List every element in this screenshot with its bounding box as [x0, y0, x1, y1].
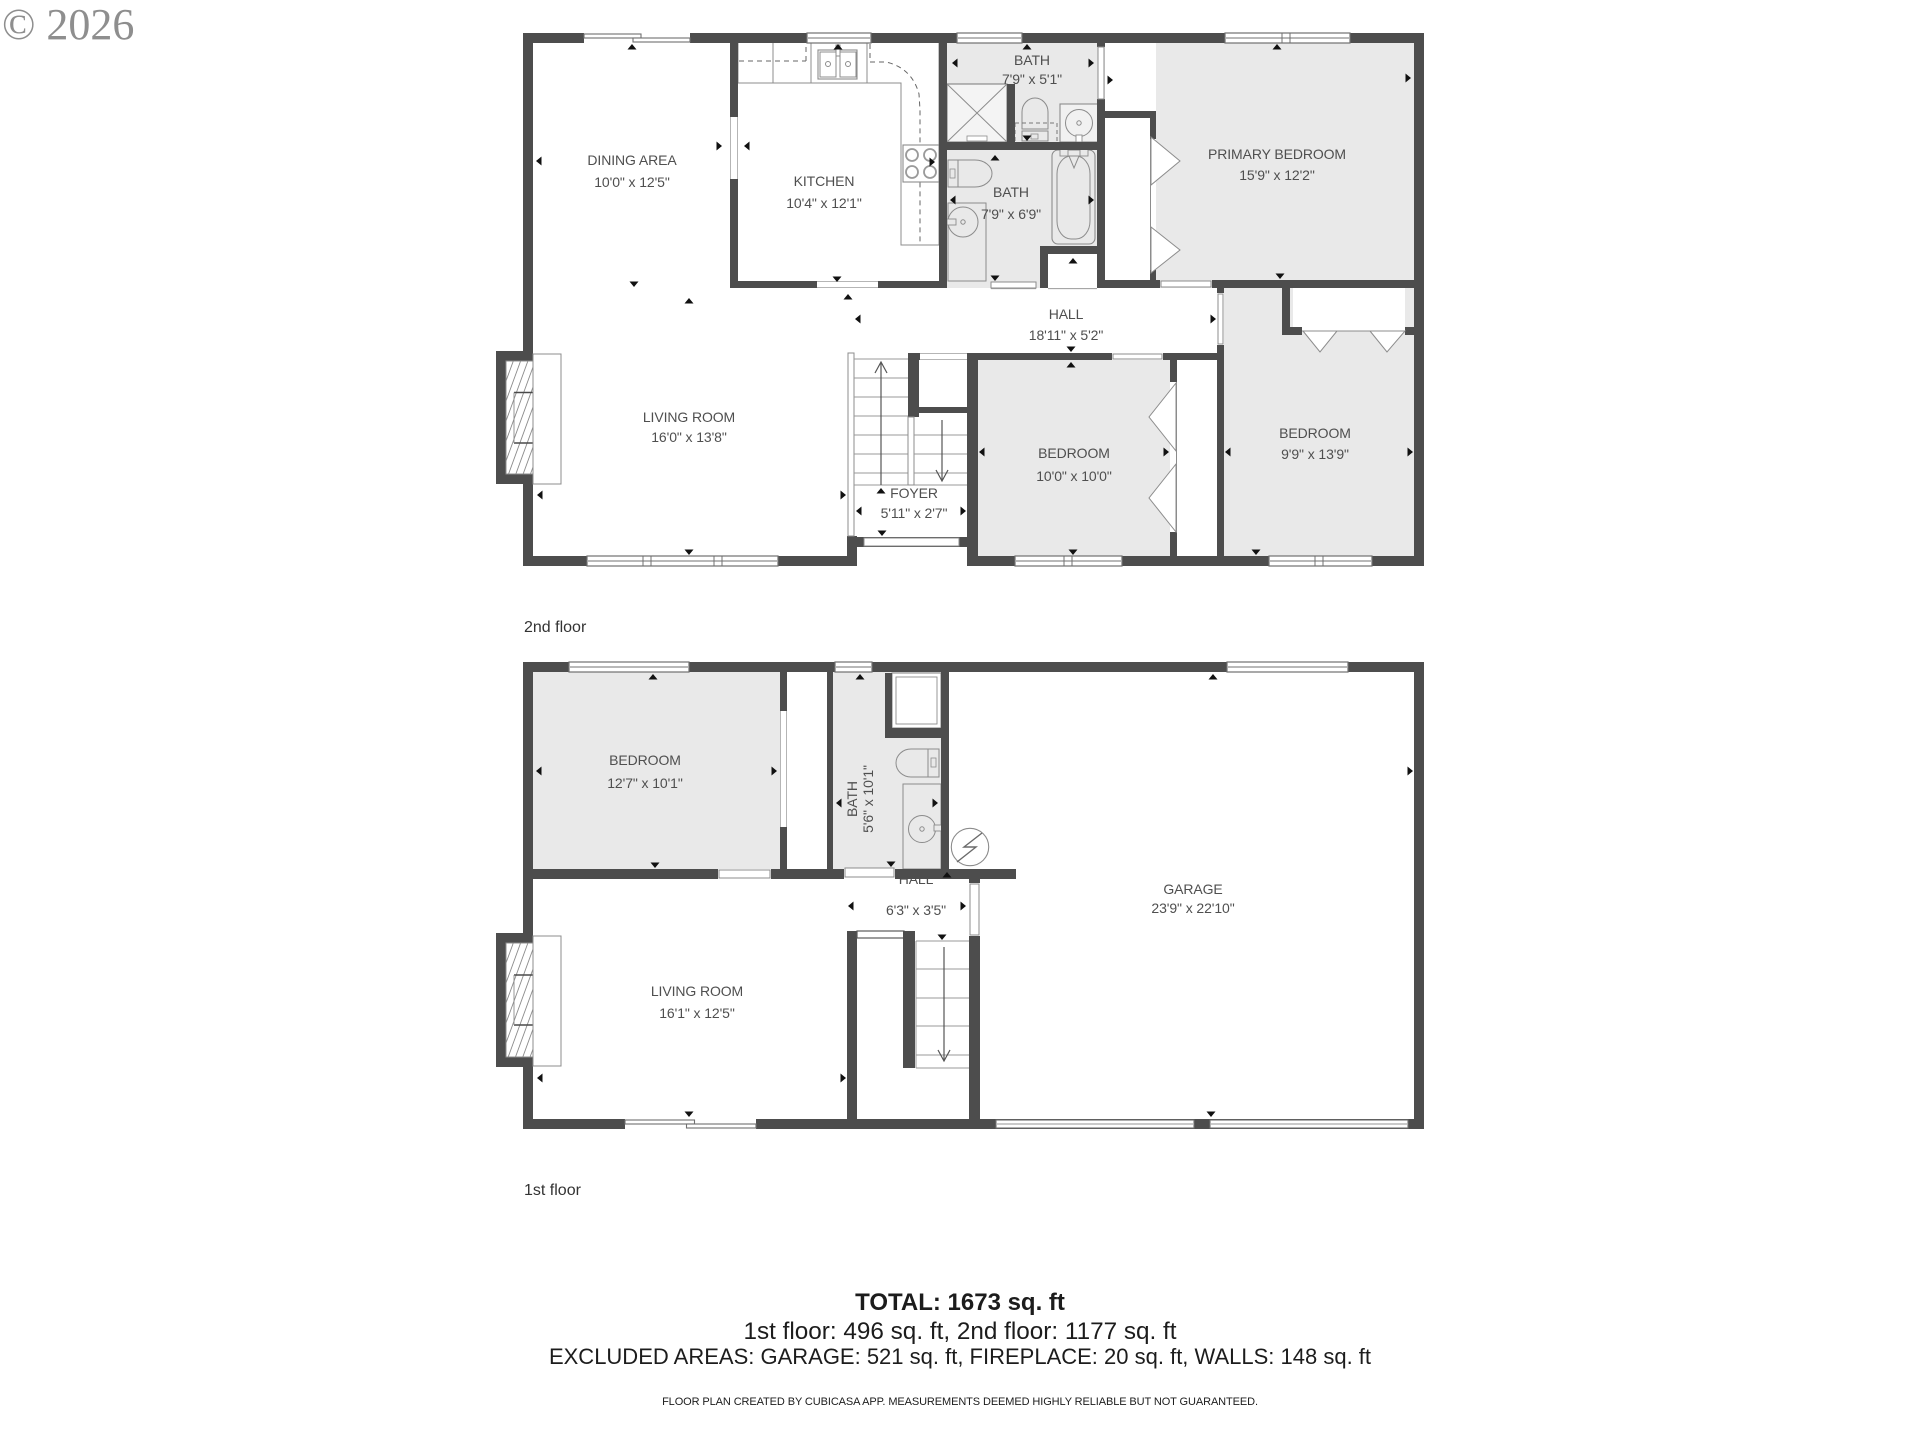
svg-text:BEDROOM: BEDROOM [1279, 425, 1351, 441]
svg-text:16'1" x 12'5": 16'1" x 12'5" [659, 1005, 735, 1021]
svg-text:TOTAL: 1673 sq. ft: TOTAL: 1673 sq. ft [855, 1289, 1065, 1316]
svg-text:BEDROOM: BEDROOM [609, 752, 681, 768]
svg-text:7'9" x 6'9": 7'9" x 6'9" [981, 206, 1041, 222]
svg-text:1st floor: 496 sq. ft, 2nd flo: 1st floor: 496 sq. ft, 2nd floor: 1177 s… [743, 1318, 1176, 1345]
svg-text:6'3" x 3'5": 6'3" x 3'5" [886, 902, 946, 918]
svg-text:BATH: BATH [1014, 52, 1050, 68]
svg-text:BEDROOM: BEDROOM [1038, 445, 1110, 461]
svg-text:23'9" x 22'10": 23'9" x 22'10" [1151, 900, 1234, 916]
svg-text:7'9" x 5'1": 7'9" x 5'1" [1002, 71, 1062, 87]
svg-text:15'9" x 12'2": 15'9" x 12'2" [1239, 167, 1315, 183]
svg-text:DINING AREA: DINING AREA [587, 152, 677, 168]
svg-text:10'0" x 12'5": 10'0" x 12'5" [594, 174, 670, 190]
svg-text:LIVING ROOM: LIVING ROOM [651, 983, 743, 999]
svg-text:2nd floor: 2nd floor [524, 619, 587, 636]
svg-text:18'11" x 5'2": 18'11" x 5'2" [1029, 327, 1104, 343]
svg-text:KITCHEN: KITCHEN [794, 173, 855, 189]
svg-text:12'7" x 10'1": 12'7" x 10'1" [607, 775, 683, 791]
svg-text:© 2026: © 2026 [2, 0, 134, 49]
svg-text:GARAGE: GARAGE [1163, 881, 1222, 897]
svg-text:10'0" x 10'0": 10'0" x 10'0" [1036, 468, 1112, 484]
svg-text:PRIMARY BEDROOM: PRIMARY BEDROOM [1208, 146, 1346, 162]
svg-text:10'4" x 12'1": 10'4" x 12'1" [786, 195, 862, 211]
svg-text:1st floor: 1st floor [524, 1182, 582, 1199]
svg-text:16'0" x 13'8": 16'0" x 13'8" [651, 429, 727, 445]
svg-text:EXCLUDED AREAS: GARAGE: 521 sq: EXCLUDED AREAS: GARAGE: 521 sq. ft, FIRE… [549, 1344, 1371, 1369]
svg-text:BATH: BATH [993, 184, 1029, 200]
svg-text:LIVING ROOM: LIVING ROOM [643, 409, 735, 425]
svg-text:BATH: BATH [844, 781, 860, 817]
svg-text:FOYER: FOYER [890, 485, 938, 501]
svg-text:5'11" x 2'7": 5'11" x 2'7" [881, 505, 948, 521]
svg-text:FLOOR PLAN CREATED BY CUBICASA: FLOOR PLAN CREATED BY CUBICASA APP. MEAS… [662, 1396, 1258, 1408]
svg-text:HALL: HALL [1049, 306, 1084, 322]
svg-text:5'6" x 10'1": 5'6" x 10'1" [860, 765, 876, 833]
svg-text:9'9" x 13'9": 9'9" x 13'9" [1281, 446, 1349, 462]
